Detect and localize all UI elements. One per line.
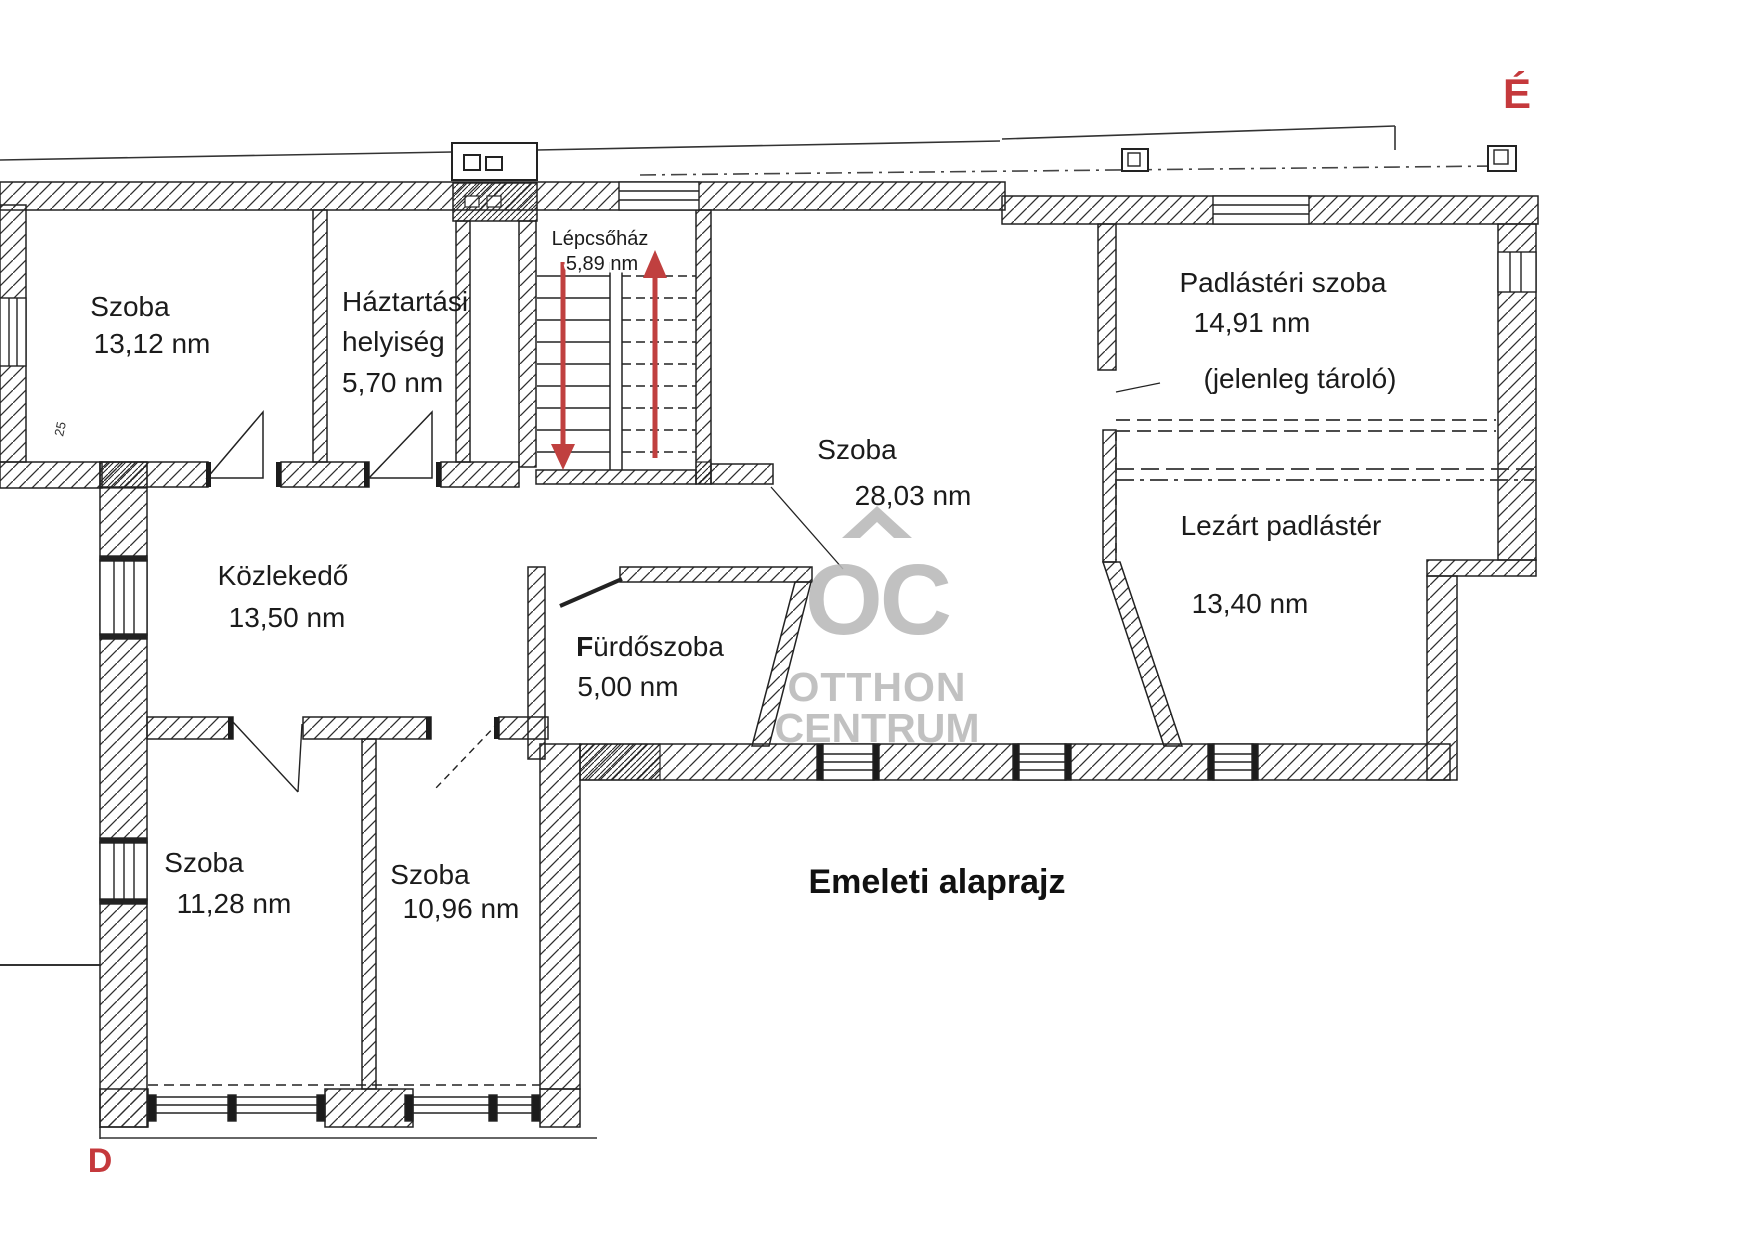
wall-left-step — [0, 462, 102, 488]
room-label-haztartasi-line1: Háztartási — [342, 286, 468, 317]
floor-plan-page: OC OTTHON CENTRUM Szoba 13,12 nm Háztart… — [0, 0, 1754, 1240]
wall-lezart-left — [1103, 430, 1116, 562]
wall-bathroom-top — [620, 567, 812, 582]
room-label-szoba13-area: 13,12 nm — [94, 328, 211, 359]
stairs-down-arrow-icon — [551, 262, 575, 470]
page-title: Emeleti alaprajz — [808, 863, 1065, 901]
floor-plan-drawing: OC OTTHON CENTRUM Szoba 13,12 nm Háztart… — [0, 0, 1754, 1240]
window-top-stairs — [619, 182, 699, 210]
room-label-padlasteri-note: (jelenleg tároló) — [1204, 363, 1397, 394]
door-szoba10 — [436, 722, 499, 788]
wall-top-left — [0, 182, 1005, 210]
room-label-lepcsohaz-name: Lépcsőház — [552, 228, 649, 250]
wall-lezart-diagonal — [1103, 562, 1182, 746]
window-bottom-2 — [1013, 744, 1071, 780]
wall-bathroom-left — [528, 567, 545, 759]
room-label-szoba28-area: 28,03 nm — [855, 480, 972, 511]
compass-north-label: É — [1503, 70, 1531, 117]
window-right-wall — [1498, 252, 1536, 292]
room-label-furdoszoba-area: 5,00 nm — [577, 671, 678, 702]
wall-stairs-left — [519, 221, 536, 467]
wall-divider-bottom-rooms — [362, 739, 376, 1089]
room-label-haztartasi-area: 5,70 nm — [342, 367, 443, 398]
otthon-centrum-watermark: OC OTTHON CENTRUM — [775, 506, 980, 751]
window-corridor-left-2 — [100, 838, 147, 904]
room-label-lezart-name: Lezárt padlástér — [1181, 510, 1382, 541]
door-bathroom — [560, 579, 622, 606]
room-label-padlasteri-area: 14,91 nm — [1194, 307, 1311, 338]
wall-right-step — [1427, 560, 1536, 576]
wall-divider-szoba13-haztartasi — [313, 210, 327, 462]
room-label-padlasteri-name: Padlástéri szoba — [1179, 267, 1386, 298]
compass-south-label: D — [88, 1142, 113, 1180]
window-corridor-left-1 — [100, 556, 147, 639]
wall-toprooms-bottom-2 — [281, 462, 369, 487]
wall-corridor-bottom-2 — [303, 717, 431, 739]
wall-wing-bottom-pier-3 — [540, 1089, 580, 1127]
wall-wing-bottom-pier-2 — [325, 1089, 413, 1127]
room-label-kozlekedo-area: 13,50 nm — [229, 602, 346, 633]
wall-toprooms-bottom-3 — [441, 462, 519, 487]
wall-wing-bottom-pier-1 — [100, 1089, 148, 1127]
wall-wing-right — [540, 744, 580, 1089]
watermark-monogram: OC — [805, 544, 950, 656]
room-label-szoba11-name: Szoba — [164, 847, 244, 878]
room-label-szoba11-area: 11,28 nm — [177, 888, 292, 919]
room-label-szoba10-name: Szoba — [390, 859, 470, 890]
wall-corridor-bottom-1 — [147, 717, 233, 739]
top-wall-corner-boxes — [1122, 146, 1516, 171]
room-label-szoba10-area: 10,96 nm — [403, 893, 520, 924]
room-label-lezart-area: 13,40 nm — [1192, 588, 1309, 619]
door-attic-room — [1116, 383, 1160, 392]
window-top-right — [1213, 196, 1309, 224]
room-label-furdoszoba-name: Fürdőszoba — [576, 631, 724, 662]
wall-stub-right-of-stairs — [711, 464, 773, 484]
wall-right-lower — [1427, 576, 1457, 780]
room-label-szoba28-name: Szoba — [817, 434, 897, 465]
wall-attic-room-left — [1098, 224, 1116, 370]
door-szoba11 — [233, 722, 302, 792]
room-label-furdoszoba-first-letter: F — [576, 631, 593, 662]
watermark-word2: CENTRUM — [775, 705, 980, 751]
window-bottom-3 — [1208, 744, 1258, 780]
door-szoba13 — [207, 412, 263, 478]
watermark-word1: OTTHON — [787, 664, 966, 710]
window-left-upper — [0, 298, 26, 366]
wall-stairs-right — [696, 210, 711, 484]
room-label-szoba13-name: Szoba — [90, 291, 170, 322]
room-label-haztartasi-line2: helyiség — [342, 326, 445, 357]
wall-divider-haztartasi-stairs — [456, 221, 470, 462]
door-haztartasi — [369, 412, 432, 478]
room-label-kozlekedo-name: Közlekedő — [218, 560, 349, 591]
small-dimension-label: 25 — [51, 420, 69, 437]
staircase — [537, 250, 696, 470]
stairs-up-arrow-icon — [643, 250, 667, 458]
room-label-furdoszoba-rest: ürdőszoba — [593, 631, 724, 662]
wall-stair-landing — [536, 470, 696, 484]
room-label-lepcsohaz-area: 5,89 nm — [566, 253, 638, 275]
